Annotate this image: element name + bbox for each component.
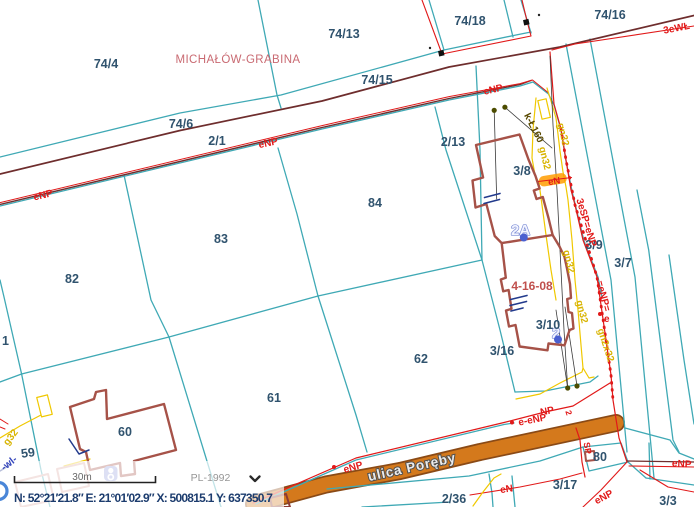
svg-text:eN: eN [500,483,514,496]
svg-text:3/16: 3/16 [490,344,514,358]
svg-text:eN: eN [547,175,561,188]
svg-text:62: 62 [414,352,428,366]
svg-text:2/13: 2/13 [441,135,465,149]
svg-text:eNP: eNP [672,458,692,470]
svg-text:82: 82 [65,272,79,286]
svg-text:74/13: 74/13 [328,27,359,41]
svg-text:30m: 30m [72,472,91,483]
svg-text:84: 84 [368,196,382,210]
svg-text:e: e [604,314,610,325]
svg-text:59: 59 [20,445,36,461]
svg-text:61: 61 [267,391,281,405]
svg-text:1: 1 [2,334,9,348]
svg-text:83: 83 [214,232,228,246]
svg-text:SP: SP [582,441,594,455]
svg-text:PL-1992: PL-1992 [191,472,231,484]
svg-text:74/16: 74/16 [594,8,625,22]
svg-text:3/7: 3/7 [614,256,631,270]
svg-text:60: 60 [118,425,132,439]
svg-text:N: 52°21′21.8″ E: 21°01′02.9″: N: 52°21′21.8″ E: 21°01′02.9″ X: 500815.… [14,491,273,505]
svg-text:74/18: 74/18 [454,14,485,28]
svg-text:MICHAŁÓW-GRABINA: MICHAŁÓW-GRABINA [175,53,300,66]
svg-text:3/17: 3/17 [553,478,577,492]
svg-text:74/15: 74/15 [361,73,392,87]
svg-text:74/6: 74/6 [169,117,193,131]
svg-text:4-16-08: 4-16-08 [511,279,553,293]
svg-text:3/3: 3/3 [659,494,676,507]
svg-text:74/4: 74/4 [94,57,118,71]
svg-text:3/10: 3/10 [536,318,560,332]
svg-text:3/8: 3/8 [513,164,530,178]
svg-text:80: 80 [593,450,607,464]
svg-text:2/1: 2/1 [208,134,225,148]
svg-text:2/36: 2/36 [442,492,466,506]
